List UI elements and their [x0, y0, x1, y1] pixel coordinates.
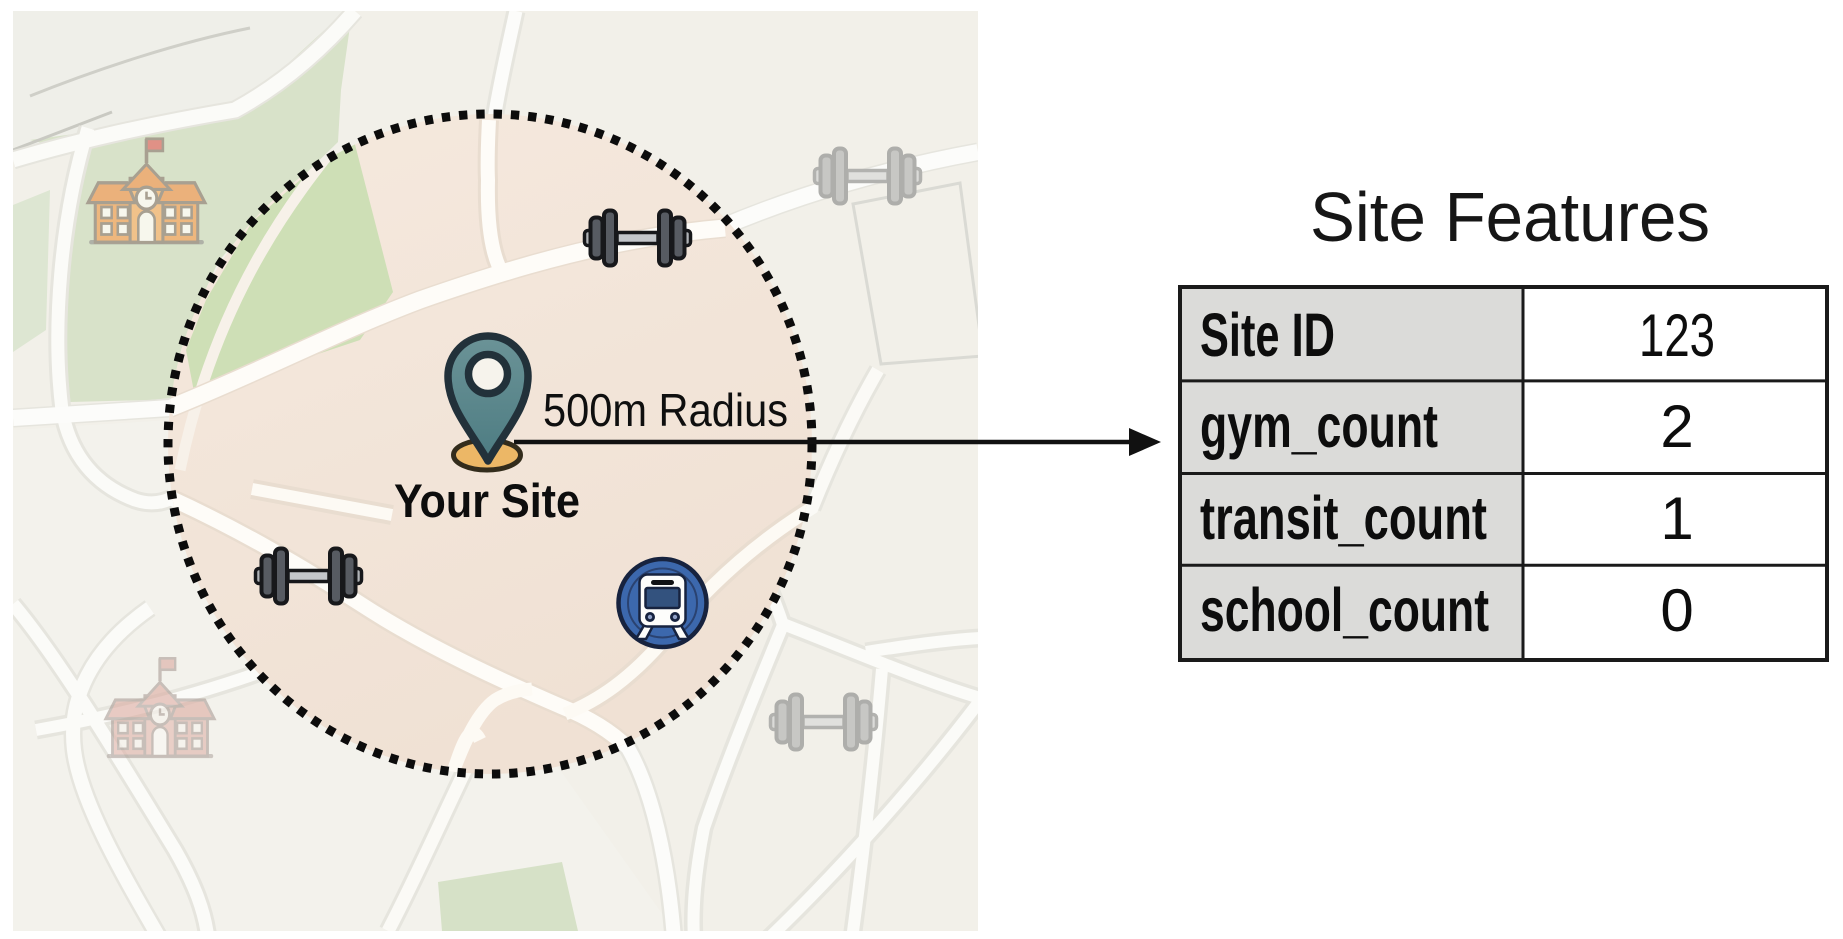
svg-text:500m Radius: 500m Radius	[543, 384, 788, 436]
svg-text:school_count: school_count	[1200, 576, 1489, 644]
svg-text:Site ID: Site ID	[1200, 301, 1335, 369]
svg-text:Site Features: Site Features	[1310, 178, 1710, 256]
svg-text:Your Site: Your Site	[394, 474, 580, 527]
svg-text:0: 0	[1660, 577, 1693, 644]
svg-text:1: 1	[1660, 485, 1693, 552]
svg-text:gym_count: gym_count	[1200, 392, 1438, 460]
svg-text:123: 123	[1639, 302, 1715, 369]
svg-text:transit_count: transit_count	[1200, 484, 1487, 552]
svg-text:2: 2	[1660, 393, 1693, 460]
